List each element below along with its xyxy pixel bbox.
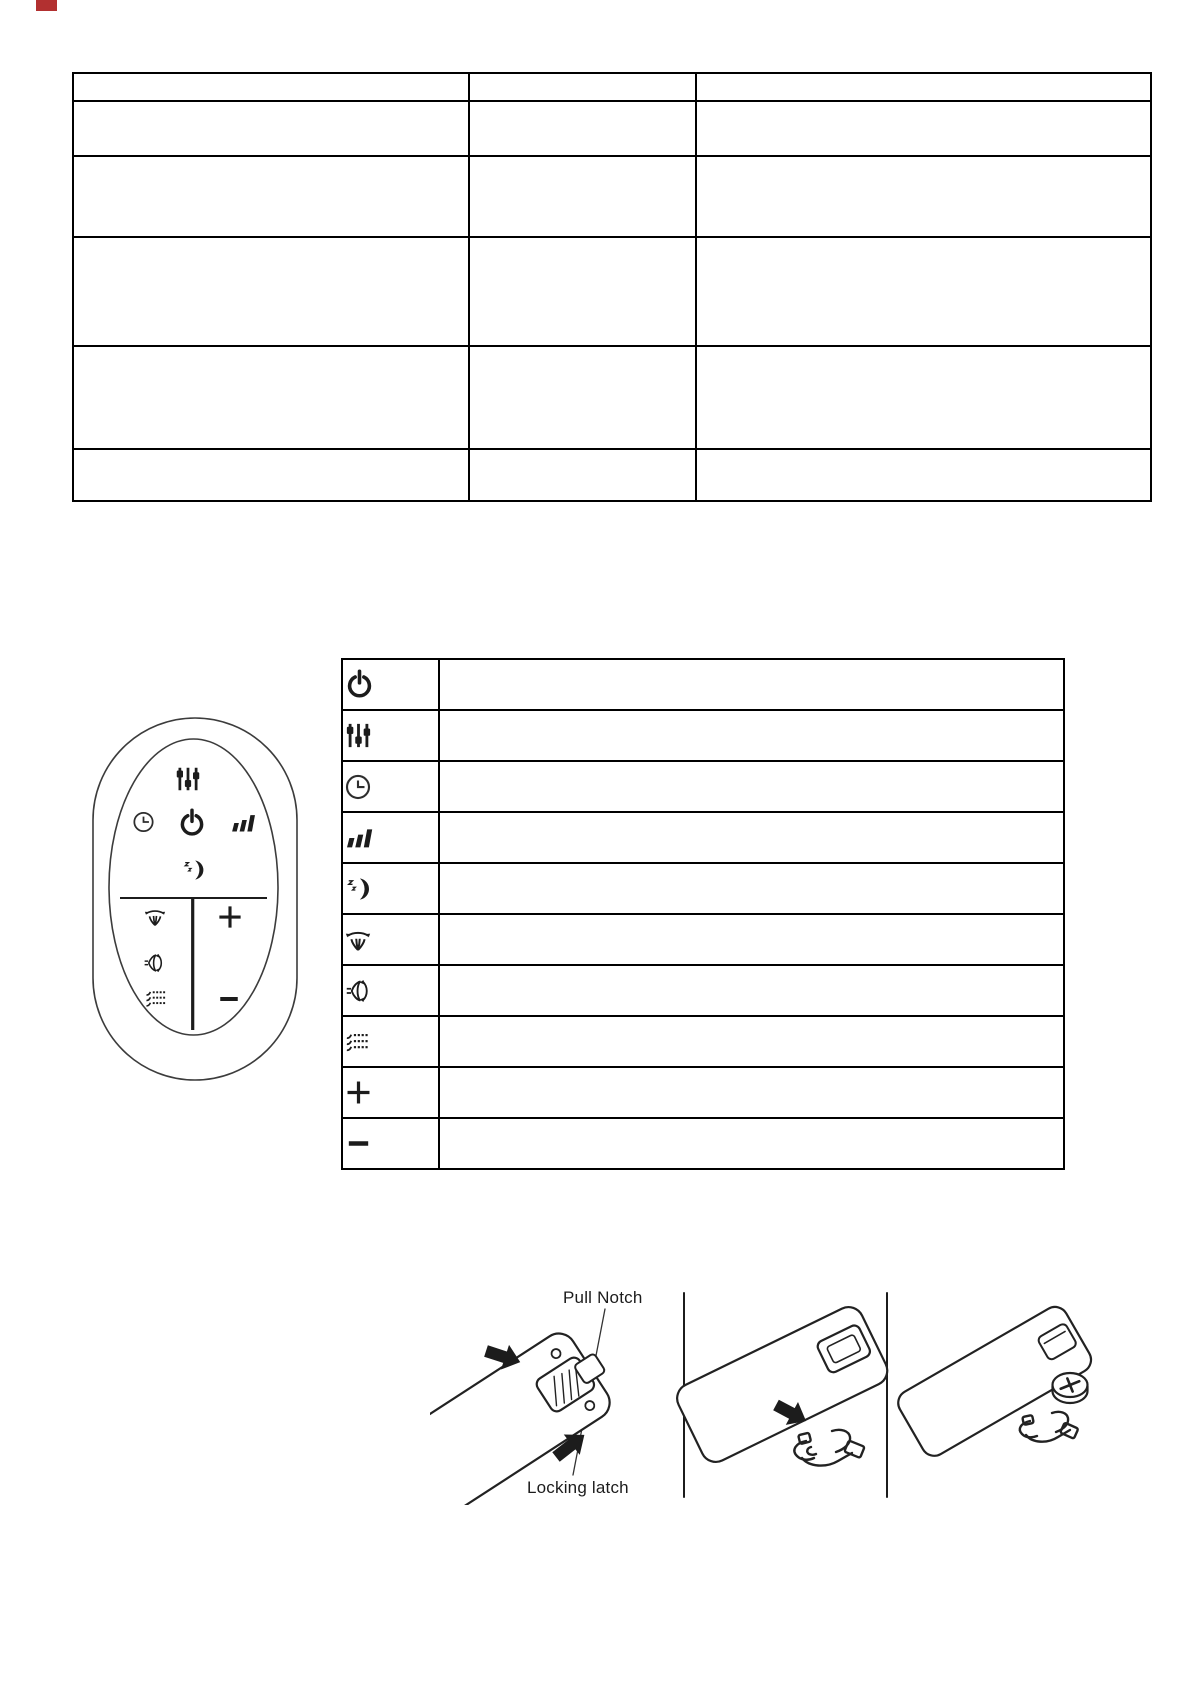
battery-holder — [1020, 1412, 1079, 1442]
table-cell — [469, 101, 696, 156]
table-row — [73, 237, 1151, 346]
table-cell — [469, 346, 696, 449]
legend-description — [439, 863, 1064, 914]
table-cell — [73, 449, 469, 501]
table-cell — [73, 73, 469, 101]
table-cell — [73, 237, 469, 346]
panel-holder-slide-out — [672, 1302, 892, 1467]
remote-settings-sliders-icon — [177, 768, 200, 791]
plus-icon — [343, 1077, 438, 1108]
red-scan-artifact — [36, 0, 57, 11]
legend-row — [342, 659, 1064, 710]
legend-description — [439, 812, 1064, 863]
table-cell — [469, 449, 696, 501]
panel-battery-and-holder — [893, 1302, 1095, 1460]
settings-sliders-icon — [343, 720, 438, 751]
table-cell — [73, 346, 469, 449]
table-cell — [73, 156, 469, 237]
table-cell — [696, 346, 1151, 449]
table-cell — [73, 101, 469, 156]
table-cell — [469, 73, 696, 101]
legend-row — [342, 863, 1064, 914]
legend-description — [439, 710, 1064, 761]
icon-legend-table — [341, 658, 1065, 1170]
minus-icon — [343, 1128, 438, 1159]
legend-description — [439, 965, 1064, 1016]
table-row — [73, 156, 1151, 237]
legend-description — [439, 914, 1064, 965]
table-cell — [696, 73, 1151, 101]
manual-page: Pull Notch Locking latch — [0, 0, 1191, 1684]
spec-table — [72, 72, 1152, 502]
battery-holder — [794, 1430, 864, 1466]
legend-row — [342, 1016, 1064, 1067]
table-row — [73, 346, 1151, 449]
table-cell — [696, 449, 1151, 501]
oscillation-icon — [343, 925, 438, 955]
airflow-direction-icon — [343, 976, 438, 1006]
legend-row — [342, 710, 1064, 761]
legend-row — [342, 965, 1064, 1016]
legend-row — [342, 914, 1064, 965]
table-cell — [696, 237, 1151, 346]
legend-description — [439, 1118, 1064, 1169]
remote-control-figure — [88, 714, 300, 1086]
table-cell — [469, 156, 696, 237]
table-cell — [696, 101, 1151, 156]
fan-speed-icon — [343, 822, 438, 854]
legend-row — [342, 1118, 1064, 1169]
legend-description — [439, 1067, 1064, 1118]
timer-clock-icon — [343, 772, 438, 802]
legend-description — [439, 761, 1064, 812]
table-row — [73, 449, 1151, 501]
table-row — [73, 101, 1151, 156]
legend-row — [342, 761, 1064, 812]
locking-latch-label: Locking latch — [527, 1478, 629, 1498]
legend-row — [342, 812, 1064, 863]
table-cell — [696, 156, 1151, 237]
battery-replacement-figure — [430, 1285, 1130, 1505]
mist-spray-icon — [343, 1027, 438, 1056]
sleep-mode-icon — [343, 874, 438, 904]
legend-description — [439, 1016, 1064, 1067]
legend-description — [439, 659, 1064, 710]
pull-notch-label: Pull Notch — [563, 1288, 642, 1308]
table-cell — [469, 237, 696, 346]
coin-battery — [1053, 1373, 1088, 1403]
power-icon — [343, 668, 438, 701]
table-row — [73, 73, 1151, 101]
legend-row — [342, 1067, 1064, 1118]
